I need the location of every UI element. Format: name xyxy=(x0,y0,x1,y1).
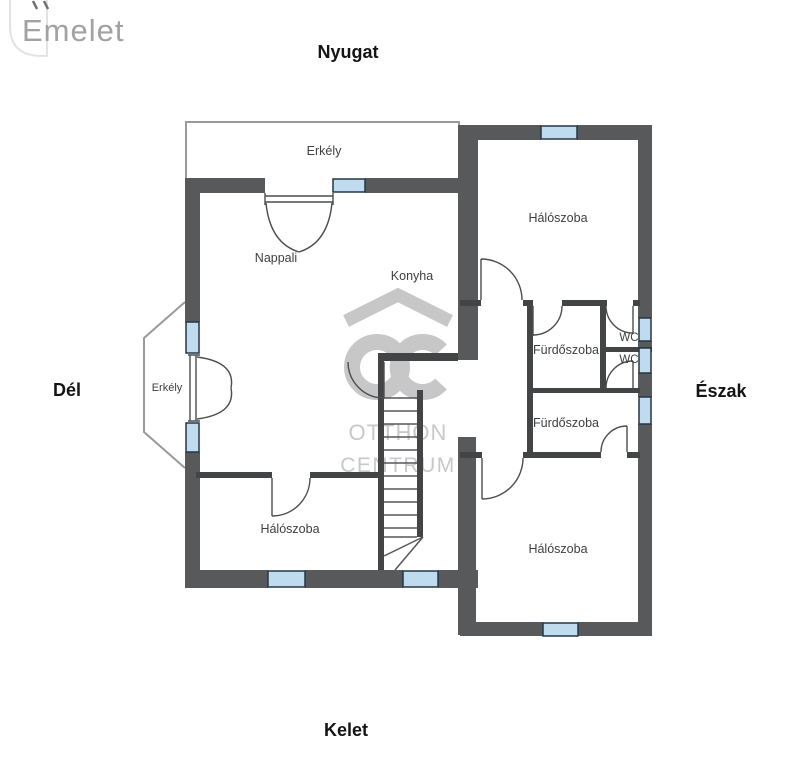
window-bottom-right xyxy=(543,623,578,636)
room-label-bathroom-lower: Fürdőszoba xyxy=(533,416,599,430)
compass-west: Nyugat xyxy=(317,42,378,62)
door-bedroom-north xyxy=(481,259,522,300)
window-east-bathroom xyxy=(639,397,651,424)
room-label-bathroom-upper: Fürdőszoba xyxy=(533,343,599,357)
window-top-left-block xyxy=(333,179,365,192)
room-label-wc-lower: WC xyxy=(619,354,638,366)
room-label-bedroom-southwest: Hálószoba xyxy=(260,522,319,536)
window-east-wc-upper xyxy=(639,318,651,341)
window-top-right-block xyxy=(541,126,577,139)
logo-tick-icon xyxy=(33,1,48,9)
windows xyxy=(186,126,651,636)
watermark-roof-icon xyxy=(346,295,450,321)
window-west-lower xyxy=(186,423,199,452)
window-east-wc-lower xyxy=(639,348,651,373)
logo: Emelet xyxy=(10,0,124,56)
room-label-bedroom-north: Hálószoba xyxy=(528,211,587,225)
floor-title: Emelet xyxy=(22,13,124,48)
window-west-upper xyxy=(186,322,199,353)
compass-east: Kelet xyxy=(324,720,368,740)
room-label-wc-upper: WC xyxy=(619,332,638,344)
oc-monogram-icon xyxy=(352,342,441,392)
compass-north: Észak xyxy=(695,380,747,401)
window-bottom-mid xyxy=(403,571,438,587)
door-bathroom-upper xyxy=(533,306,562,336)
room-label-balcony-west: Erkély xyxy=(152,382,183,394)
compass-south: Dél xyxy=(53,380,81,400)
door-balcony-top xyxy=(265,193,333,252)
door-bedroom-southeast xyxy=(482,458,523,499)
room-label-bedroom-southeast: Hálószoba xyxy=(528,542,587,556)
room-label-kitchen: Konyha xyxy=(391,269,433,283)
door-balcony-west xyxy=(188,355,232,421)
window-bottom-left xyxy=(268,571,305,587)
door-bathroom-lower xyxy=(601,426,627,452)
room-label-balcony-top: Erkély xyxy=(307,144,342,158)
room-label-living-room: Nappali xyxy=(255,251,297,265)
floorplan-page: Emelet Nyugat Dél Észak Kelet OTTHON CEN… xyxy=(0,0,800,768)
floorplan-svg: Emelet Nyugat Dél Észak Kelet OTTHON CEN… xyxy=(0,0,800,768)
door-bedroom-southwest xyxy=(272,478,310,516)
door-wc-upper xyxy=(606,306,633,333)
exterior-walls xyxy=(185,125,652,636)
